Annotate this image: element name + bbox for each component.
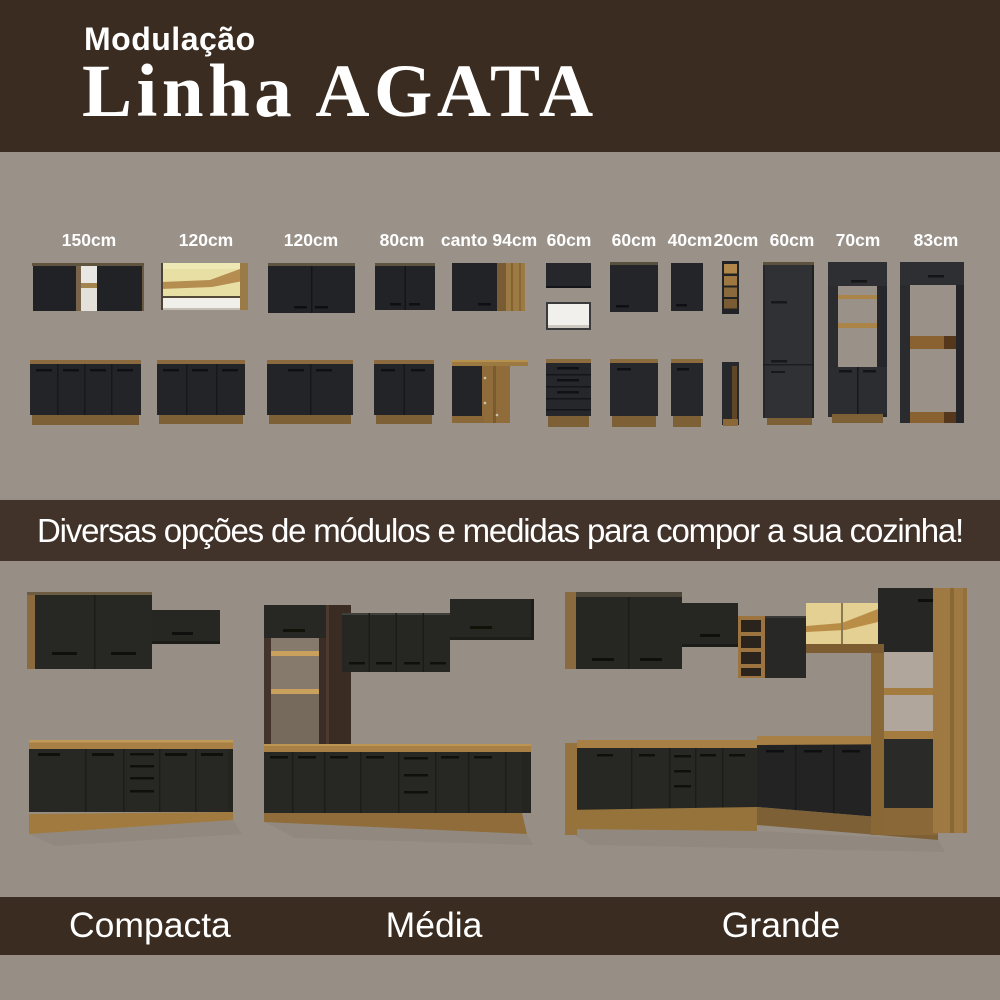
svg-text:80cm: 80cm (380, 230, 425, 250)
svg-text:120cm: 120cm (284, 230, 339, 250)
svg-text:60cm: 60cm (770, 230, 815, 250)
svg-text:83cm: 83cm (914, 230, 959, 250)
svg-text:60cm: 60cm (547, 230, 592, 250)
svg-text:20cm: 20cm (714, 230, 759, 250)
svg-text:60cm: 60cm (612, 230, 657, 250)
svg-text:120cm: 120cm (179, 230, 234, 250)
svg-text:40cm: 40cm (668, 230, 713, 250)
svg-text:canto 94cm: canto 94cm (441, 230, 537, 250)
svg-text:70cm: 70cm (836, 230, 881, 250)
svg-text:150cm: 150cm (62, 230, 117, 250)
